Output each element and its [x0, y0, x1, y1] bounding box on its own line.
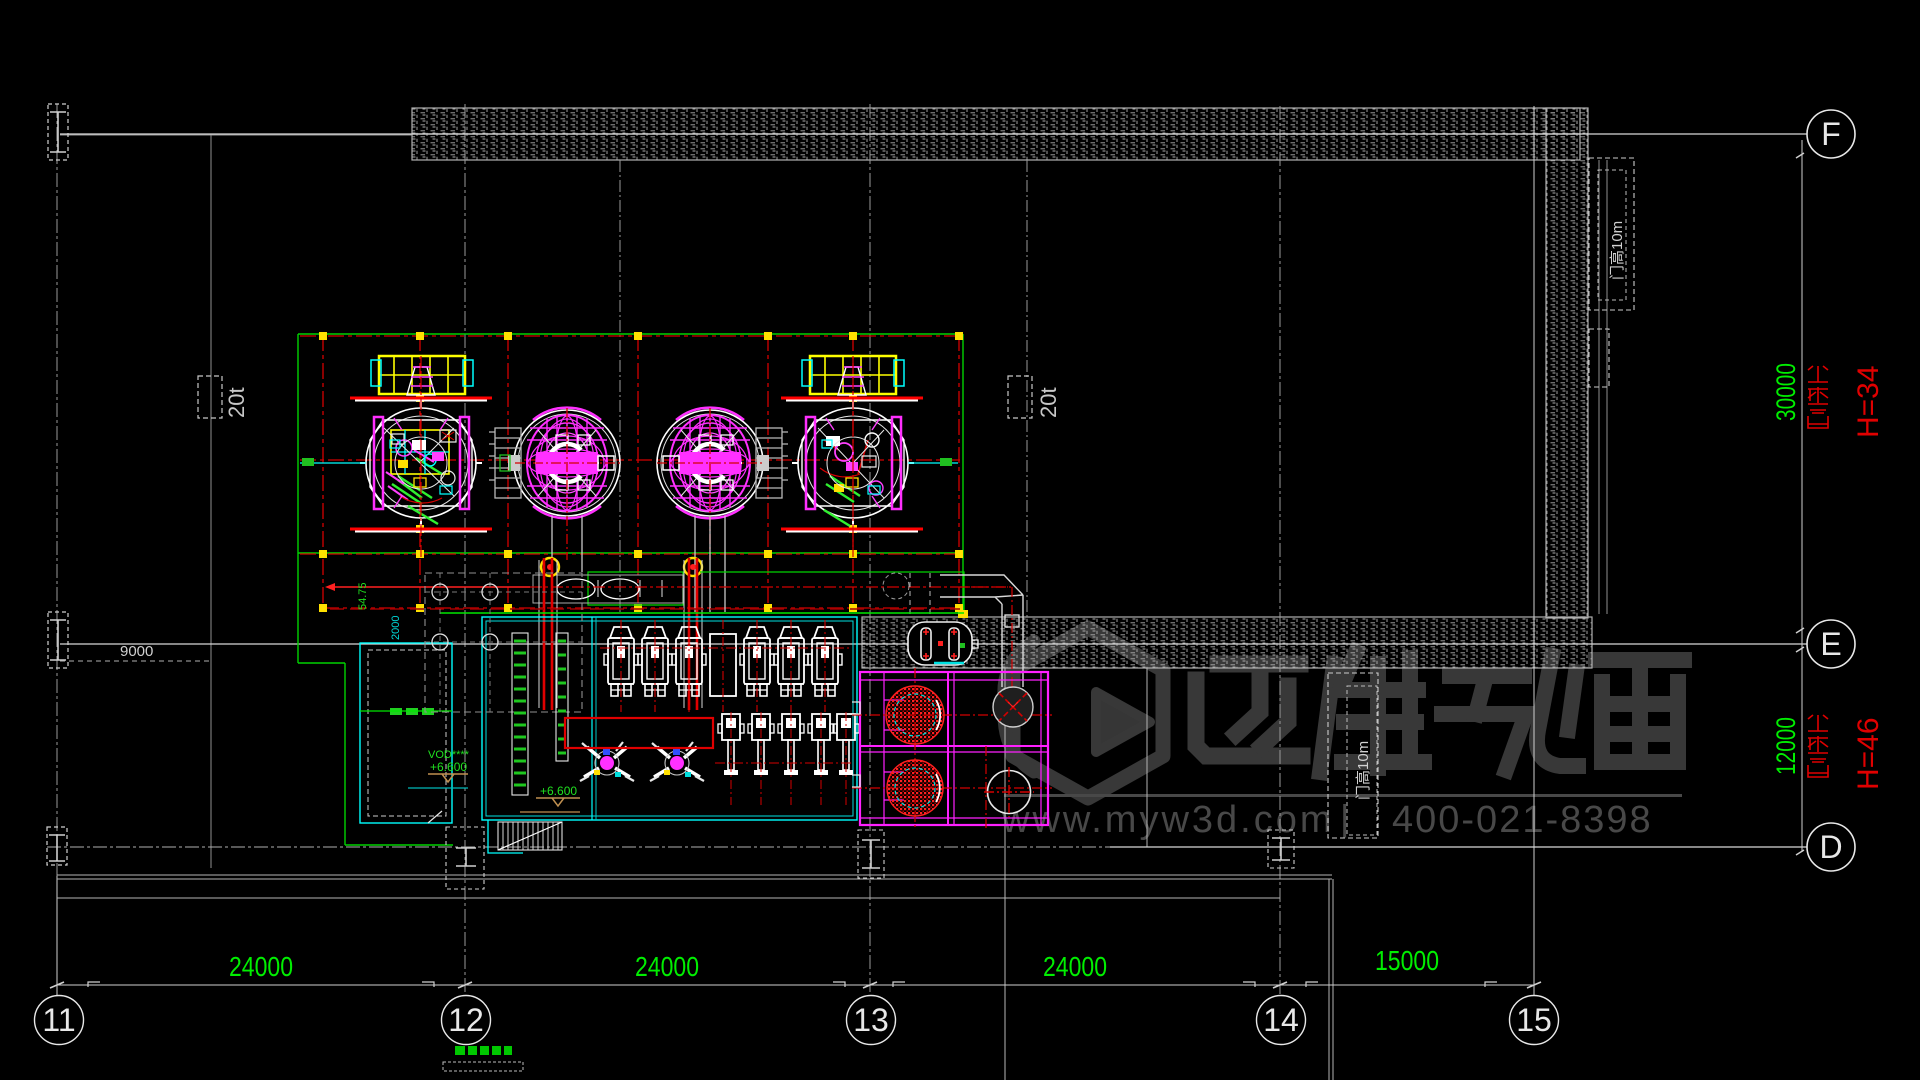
svg-text:+6.600: +6.600 [540, 784, 577, 798]
svg-text:D: D [1819, 829, 1842, 865]
svg-text:20t: 20t [224, 387, 249, 418]
svg-text:15000: 15000 [1375, 945, 1439, 976]
svg-text:12000: 12000 [1771, 717, 1801, 775]
svg-text:24000: 24000 [1043, 951, 1107, 982]
svg-text:|: | [1340, 797, 1349, 838]
svg-text:E: E [1820, 626, 1841, 662]
svg-text:54.75: 54.75 [357, 582, 369, 610]
svg-text:30000: 30000 [1771, 363, 1801, 421]
svg-text:F: F [1821, 116, 1841, 152]
svg-text:15: 15 [1516, 1002, 1552, 1038]
svg-text:门高10m: 门高10m [1609, 221, 1626, 280]
svg-text:H=46: H=46 [1852, 717, 1885, 790]
svg-text:12: 12 [448, 1002, 484, 1038]
svg-text:14: 14 [1263, 1002, 1299, 1038]
svg-text:2000: 2000 [390, 616, 402, 640]
svg-text:400-021-8398: 400-021-8398 [1392, 799, 1653, 841]
svg-text:11: 11 [42, 1002, 75, 1038]
svg-text:www.myw3d.com: www.myw3d.com [1001, 799, 1335, 841]
svg-text:+6.600: +6.600 [430, 760, 467, 774]
svg-text:H=34: H=34 [1852, 365, 1885, 438]
svg-text:门高10m: 门高10m [1355, 741, 1372, 800]
svg-text:24000: 24000 [229, 951, 293, 982]
svg-text:20t: 20t [1036, 387, 1061, 418]
svg-text:9000: 9000 [120, 643, 153, 660]
svg-text:13: 13 [853, 1002, 889, 1038]
svg-text:24000: 24000 [635, 951, 699, 982]
